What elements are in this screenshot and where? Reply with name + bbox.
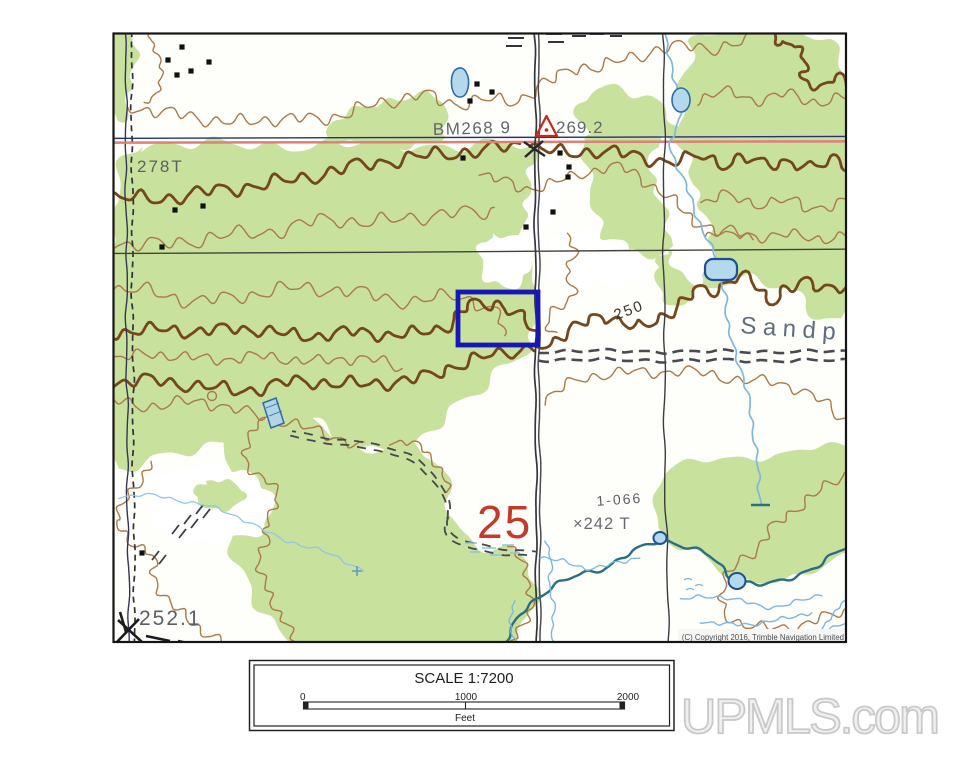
svg-text:25: 25 (477, 496, 532, 548)
svg-text:1-066: 1-066 (596, 490, 643, 509)
svg-text:×242 T: ×242 T (573, 515, 631, 533)
svg-text:2000: 2000 (617, 692, 640, 703)
svg-text:Feet: Feet (455, 713, 475, 724)
svg-text:269.2: 269.2 (556, 118, 604, 137)
svg-text:278T: 278T (137, 157, 184, 176)
svg-text:0: 0 (300, 692, 306, 703)
svg-text:1000: 1000 (455, 692, 478, 703)
svg-text:BM268 9: BM268 9 (433, 118, 512, 139)
svg-text:UPMLS.com: UPMLS.com (681, 690, 940, 744)
svg-text:(C) Copyright 2016, Trimble Na: (C) Copyright 2016, Trimble Navigation L… (682, 633, 844, 642)
svg-text:252.1: 252.1 (139, 607, 202, 630)
svg-text:SCALE 1:7200: SCALE 1:7200 (414, 670, 513, 687)
